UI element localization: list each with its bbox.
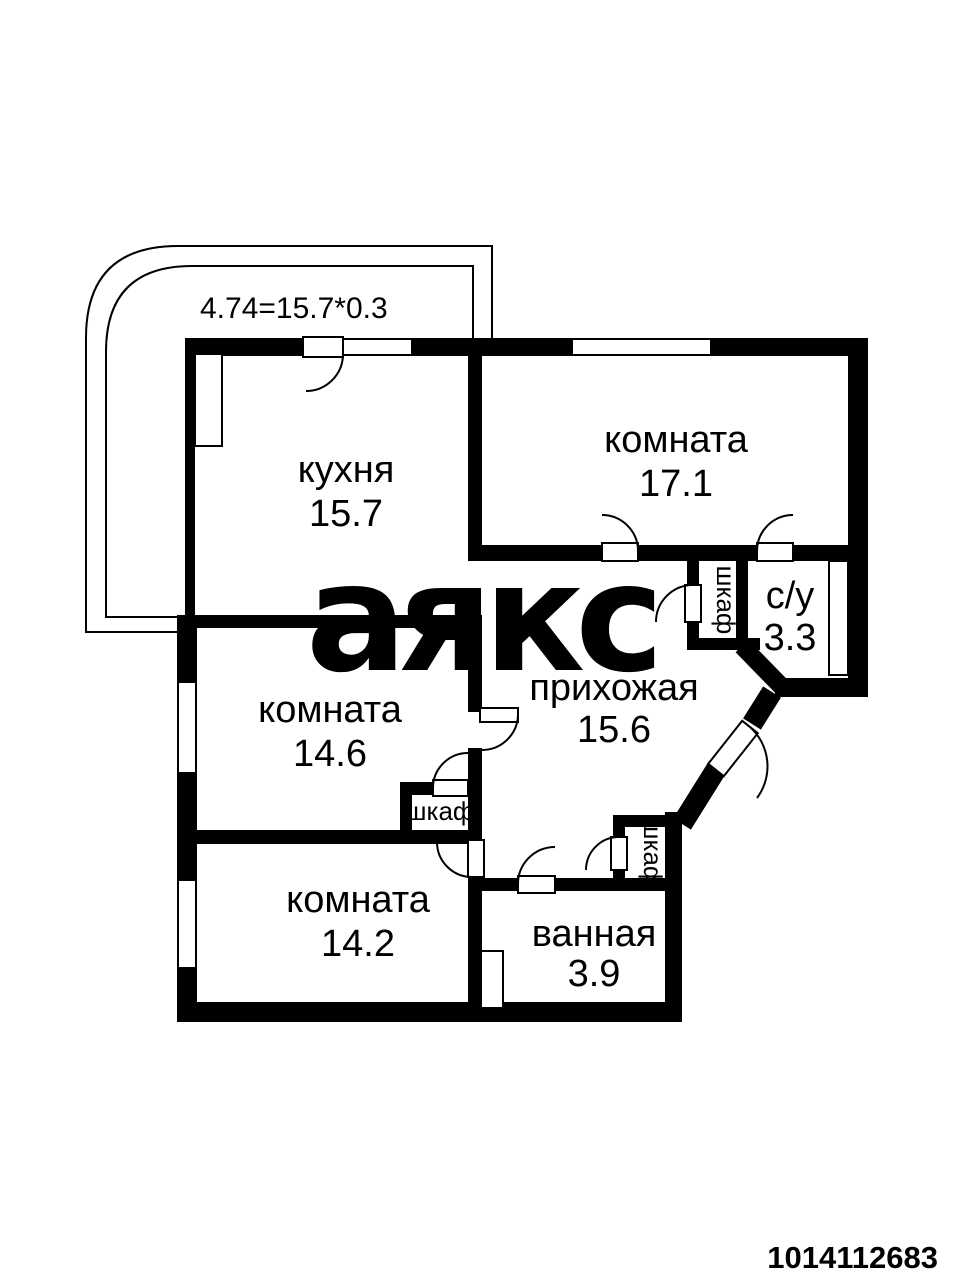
wall-left-seg2 xyxy=(177,773,197,880)
room17-label: комната xyxy=(604,419,749,461)
wc-label: с/у xyxy=(766,575,815,617)
bathroom-door-leaf xyxy=(518,876,555,893)
room17-door1-leaf xyxy=(602,543,638,561)
closet146-door-leaf xyxy=(433,780,468,796)
bathroom-niche xyxy=(481,951,503,1008)
room146-window xyxy=(178,682,196,773)
wall-wc-bottom xyxy=(775,678,868,697)
wall-room17-bottom-c xyxy=(793,545,868,561)
kitchen-window xyxy=(343,339,412,355)
wall-closet-wc-left-a xyxy=(687,561,699,585)
photo-id: 1014112683 xyxy=(767,1240,938,1275)
room142-window xyxy=(178,880,196,968)
room146-label: комната xyxy=(258,689,403,731)
kitchen-area: 15.7 xyxy=(309,493,383,535)
room142-door-leaf xyxy=(468,840,484,877)
wc-shaft xyxy=(829,561,848,675)
room146-area: 14.6 xyxy=(293,733,367,775)
wall-room17-bottom-b xyxy=(638,545,758,561)
wall-top-middle xyxy=(412,338,572,356)
balcony-annotation: 4.74=15.7*0.3 xyxy=(200,292,388,325)
hallway-label: прихожая xyxy=(529,667,698,709)
floor-plan: аякс xyxy=(0,0,956,1280)
room142-label: комната xyxy=(286,879,431,921)
closet-wc-door-leaf xyxy=(685,585,701,622)
bathroom-area: 3.9 xyxy=(568,953,621,995)
wall-closet-bath-left-b xyxy=(613,870,625,878)
wall-closet-bath-left-a xyxy=(613,827,625,837)
floor-plan-page: аякс xyxy=(0,0,956,1280)
room17-window xyxy=(572,339,711,355)
wall-top-room17-right xyxy=(711,338,868,356)
wall-kitchen-room146-divider xyxy=(195,615,482,628)
wall-room146-room142-divider xyxy=(177,830,482,844)
closet-bath-label: шкаф xyxy=(638,819,668,888)
wall-right-exterior xyxy=(848,338,868,697)
room142-area: 14.2 xyxy=(321,923,395,965)
wall-left-seg1 xyxy=(177,615,197,682)
balcony-door-leaf xyxy=(303,337,343,357)
wall-kitchen-left xyxy=(185,338,195,618)
room17-area: 17.1 xyxy=(639,463,713,505)
wall-room17-bottom-a xyxy=(468,545,602,561)
wall-hall-room146-a xyxy=(468,615,482,712)
kitchen-label: кухня xyxy=(298,449,395,491)
wc-area: 3.3 xyxy=(764,617,817,659)
room17-door2-leaf xyxy=(757,543,793,561)
wall-hall-room142 xyxy=(468,877,482,1002)
closet-bath-door-leaf xyxy=(611,837,627,870)
kitchen-niche xyxy=(195,354,222,446)
room146-door-leaf xyxy=(480,708,518,722)
bathroom-label: ванная xyxy=(532,913,657,955)
wall-bathroom-top-a xyxy=(482,878,518,891)
wall-kitchen-room17-divider xyxy=(468,338,482,545)
wall-closet146-top xyxy=(400,782,433,795)
closet146-label: шкаф xyxy=(406,796,475,826)
closet-wc-label: шкаф xyxy=(711,566,741,635)
wall-bottom-exterior xyxy=(177,1002,682,1022)
hallway-area: 15.6 xyxy=(577,709,651,751)
